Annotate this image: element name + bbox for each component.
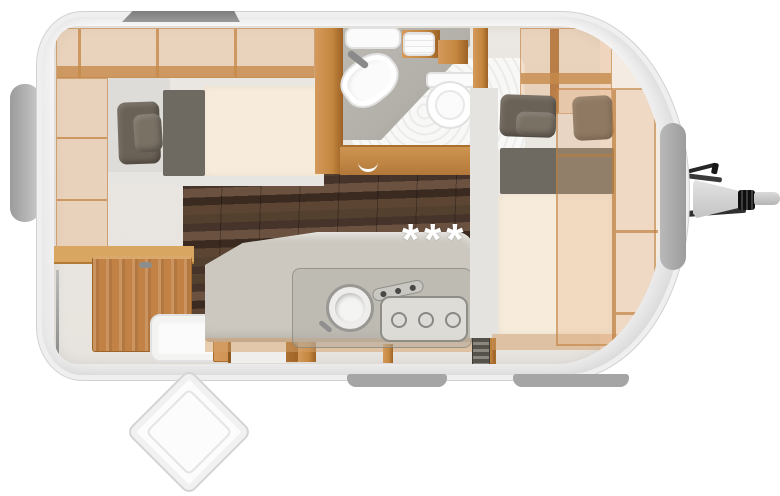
wardrobe-shelf	[57, 137, 107, 139]
hob-burner	[391, 312, 407, 328]
locker-front-edge	[521, 73, 611, 84]
bed-left-pillow-small	[133, 113, 164, 153]
bathroom-door-handle	[358, 161, 378, 172]
towel-stack	[403, 32, 435, 56]
hob-knob	[409, 284, 416, 291]
caravan-floorplan-image: { "floorplan": { "stars_label": "***", "…	[0, 0, 780, 438]
bathroom-cabinet	[438, 40, 468, 64]
bed-left-folded-bedding	[163, 90, 205, 176]
wardrobe-left	[56, 78, 108, 254]
overhead-lockers-rear	[56, 28, 315, 78]
kitchen-sink	[326, 284, 374, 332]
bathroom-wall-left	[315, 28, 343, 174]
stars-label: ***	[402, 218, 532, 262]
hob	[380, 296, 468, 342]
bathroom-door	[340, 145, 488, 175]
wardrobe-shelf	[57, 199, 107, 201]
roof-vent	[345, 27, 401, 49]
roof-rail	[122, 11, 240, 22]
kitchen-sink-bowl	[335, 293, 365, 323]
wardrobe-shelf	[616, 312, 658, 315]
underfloor-skirt-right	[513, 374, 629, 387]
wardrobe-shelf	[558, 154, 612, 157]
locker-front-edge	[57, 66, 314, 78]
bed-left-mattress	[203, 86, 323, 176]
table-leg	[56, 270, 59, 362]
underfloor-skirt-left	[347, 374, 447, 387]
hitch-brake-knob	[711, 162, 719, 174]
front-window	[660, 123, 686, 270]
entry-door-open	[125, 368, 252, 495]
hob-burner	[418, 312, 434, 328]
wardrobe-shelf	[616, 230, 658, 233]
entry-door-panel	[145, 388, 233, 476]
bed-right-base	[470, 88, 498, 338]
hitch-coupling-bellows	[738, 190, 755, 210]
bed-right-pillow-small	[516, 111, 557, 136]
hob-knob	[395, 287, 402, 294]
hitch-coupling-head	[754, 192, 780, 205]
toilet	[426, 81, 474, 129]
interior-floor: ***	[54, 26, 666, 364]
hob-burner	[445, 312, 461, 328]
table-handle	[139, 262, 152, 268]
wardrobe-divider	[612, 90, 616, 344]
wardrobe-right-overlay	[556, 88, 656, 346]
